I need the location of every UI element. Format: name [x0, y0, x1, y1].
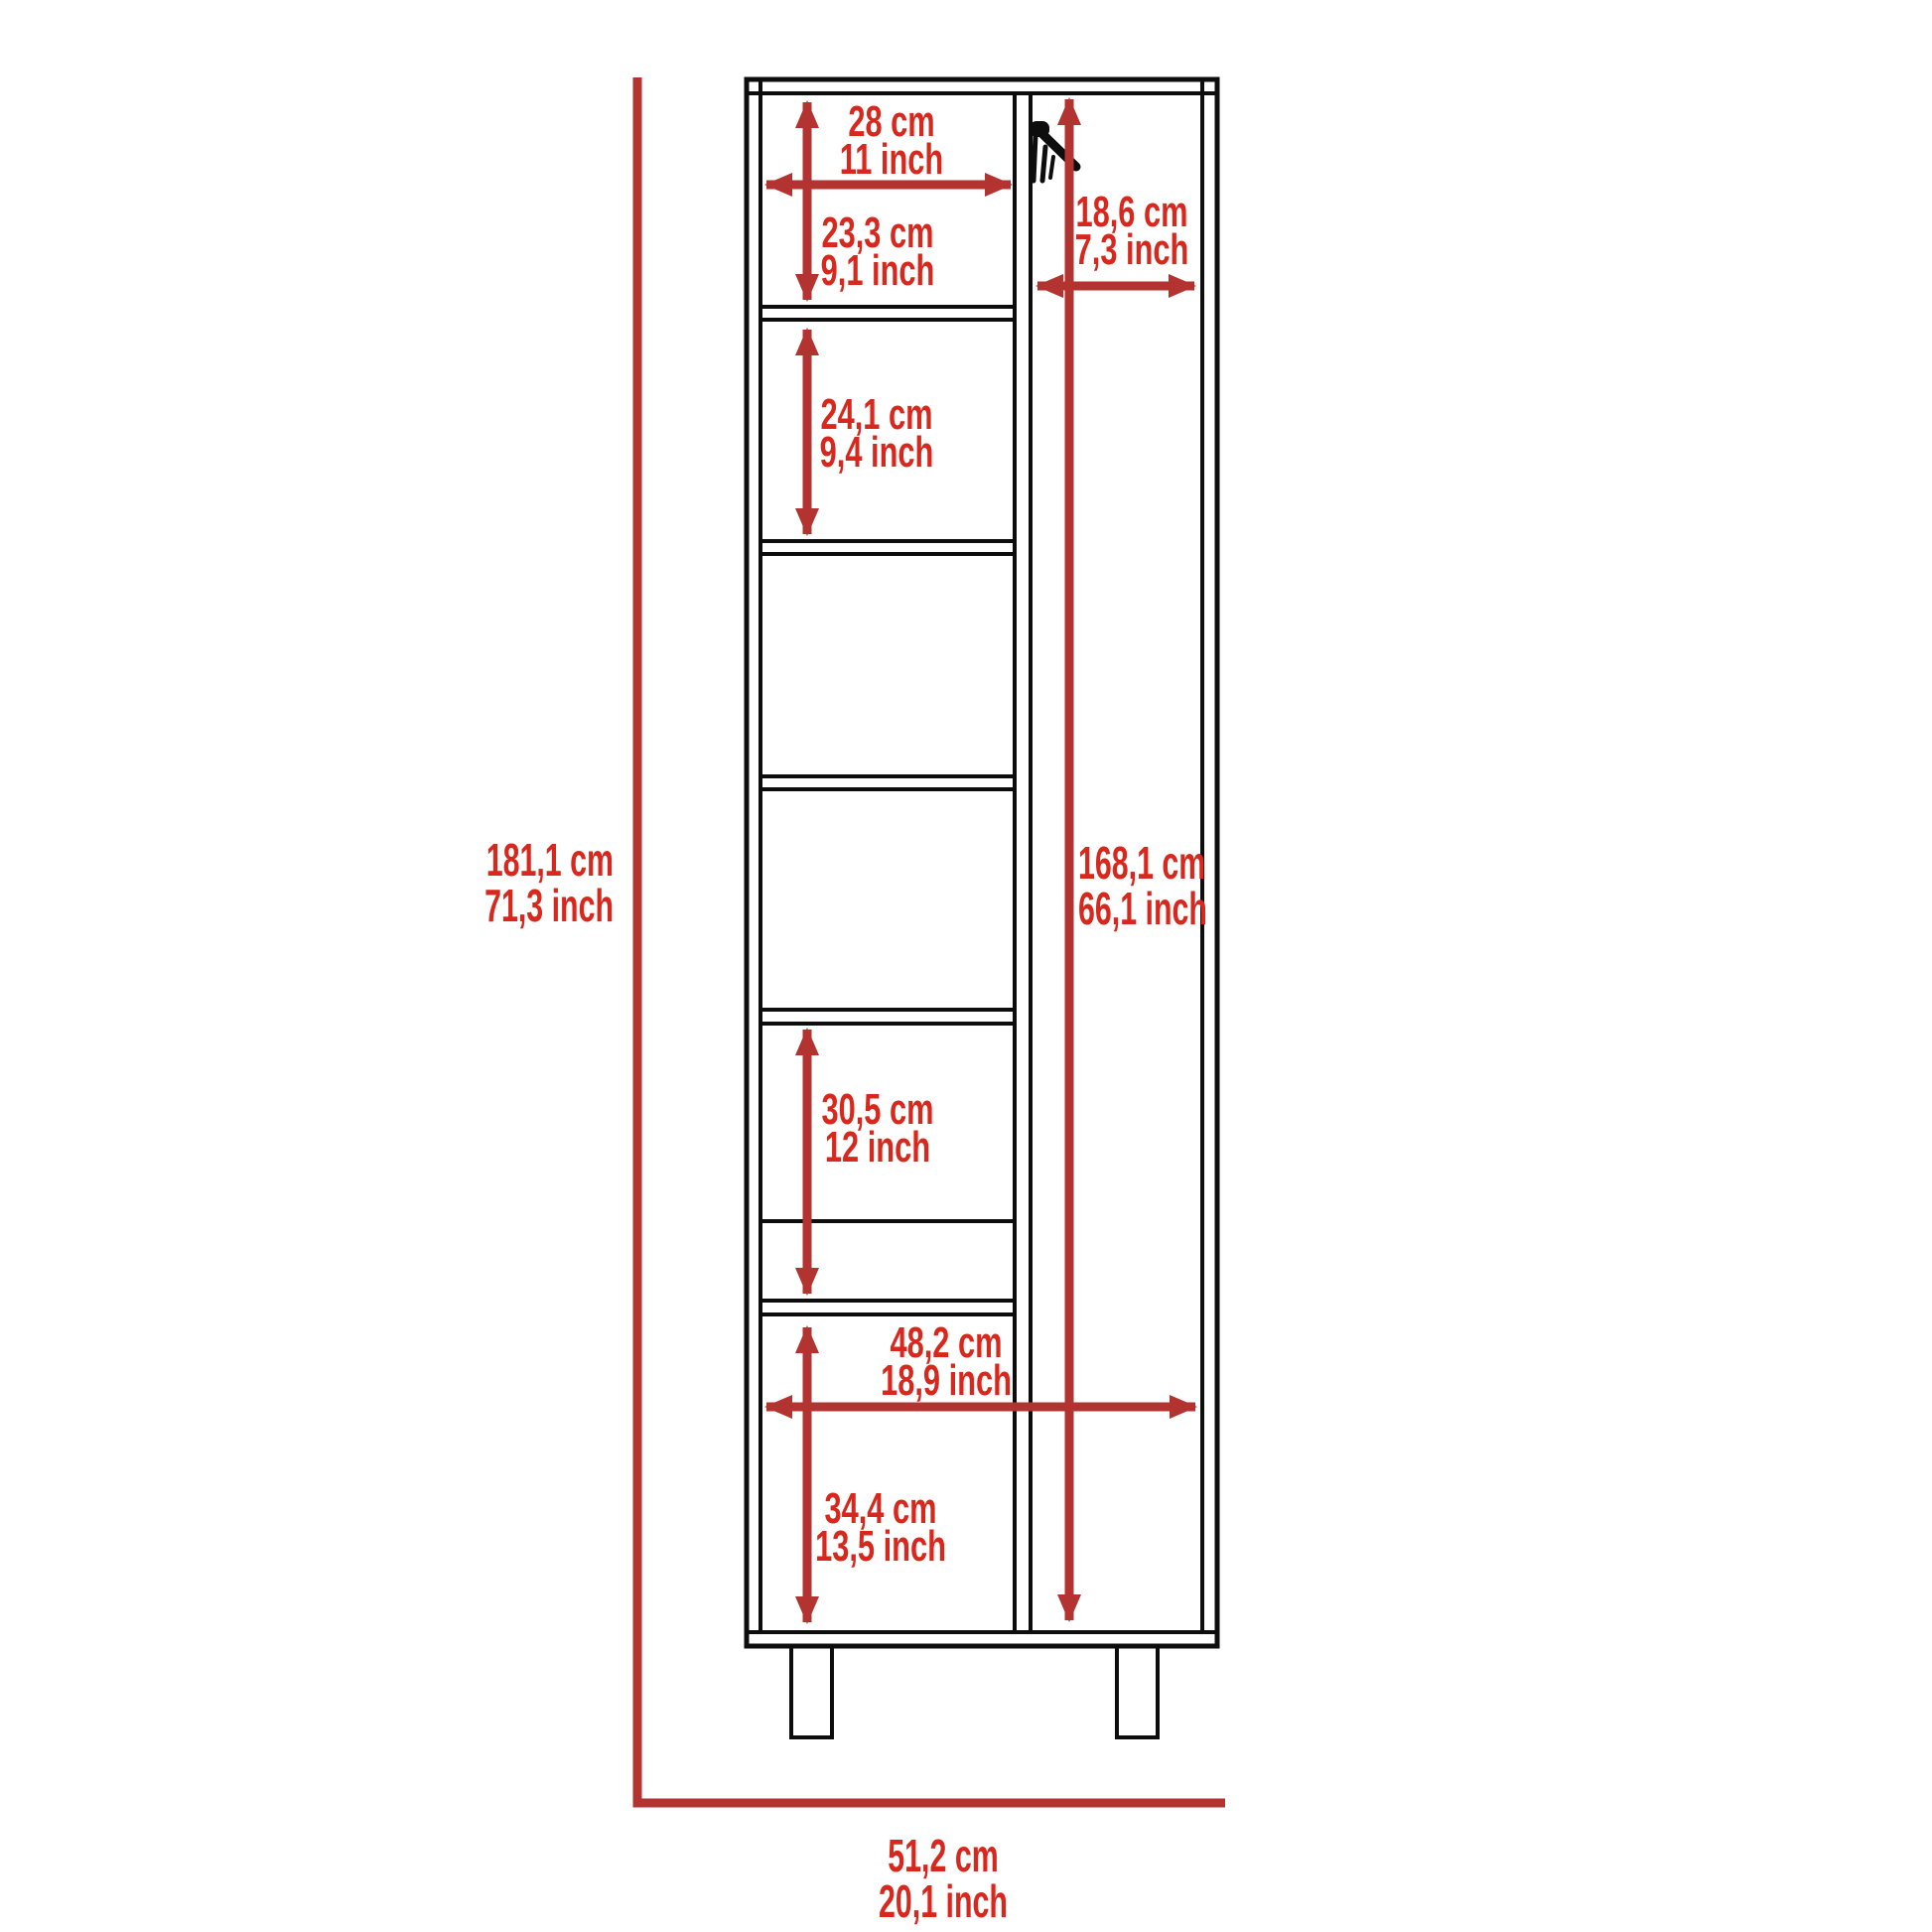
dim-value-cm: 48,2 cm	[881, 1324, 1012, 1362]
dim-value-cm: 51,2 cm	[879, 1833, 1008, 1878]
dim-label-second-shelf-height: 24,1 cm 9,4 inch	[820, 396, 934, 472]
cabinet-leg-right	[1117, 1636, 1158, 1737]
dim-value-inch: 20,1 inch	[879, 1878, 1008, 1924]
dim-value-inch: 71,3 inch	[484, 883, 614, 928]
dim-label-door-inner-width: 18,6 cm 7,3 inch	[1075, 194, 1189, 269]
dim-label-bottom-door-height: 34,4 cm 13,5 inch	[815, 1490, 946, 1566]
dim-value-inch: 7,3 inch	[1075, 231, 1189, 269]
dim-value-cm: 30,5 cm	[821, 1091, 933, 1129]
dim-label-door-height: 168,1 cm 66,1 inch	[1078, 840, 1207, 931]
dim-label-bottom-inner-width: 48,2 cm 18,9 inch	[881, 1324, 1012, 1400]
dim-value-inch: 18,9 inch	[881, 1362, 1012, 1400]
dim-value-inch: 12 inch	[821, 1129, 933, 1167]
dim-label-shelf-width: 28 cm 11 inch	[840, 103, 943, 179]
dim-label-overall-width: 51,2 cm 20,1 inch	[879, 1833, 1008, 1924]
dim-value-inch: 11 inch	[840, 141, 943, 179]
dim-value-inch: 66,1 inch	[1078, 886, 1207, 931]
dim-label-overall-height: 181,1 cm 71,3 inch	[484, 837, 614, 928]
dim-label-lower-shelf-height: 30,5 cm 12 inch	[821, 1091, 933, 1167]
dim-value-cm: 168,1 cm	[1078, 840, 1207, 886]
dim-value-cm: 34,4 cm	[815, 1490, 946, 1528]
dim-value-cm: 18,6 cm	[1075, 194, 1189, 231]
dim-value-cm: 24,1 cm	[820, 396, 934, 434]
dim-value-cm: 28 cm	[840, 103, 943, 141]
dim-label-top-shelf-height: 23,3 cm 9,1 inch	[821, 214, 935, 290]
dim-value-inch: 9,4 inch	[820, 434, 934, 472]
dim-value-inch: 13,5 inch	[815, 1528, 946, 1566]
dim-value-cm: 181,1 cm	[484, 837, 614, 883]
cabinet-leg-left	[791, 1636, 832, 1737]
dim-value-cm: 23,3 cm	[821, 214, 935, 252]
cabinet-dimension-diagram: 28 cm 11 inch 23,3 cm 9,1 inch 18,6 cm 7…	[0, 0, 1932, 1932]
diagram-drawing	[0, 0, 1932, 1932]
dim-value-inch: 9,1 inch	[821, 252, 935, 290]
